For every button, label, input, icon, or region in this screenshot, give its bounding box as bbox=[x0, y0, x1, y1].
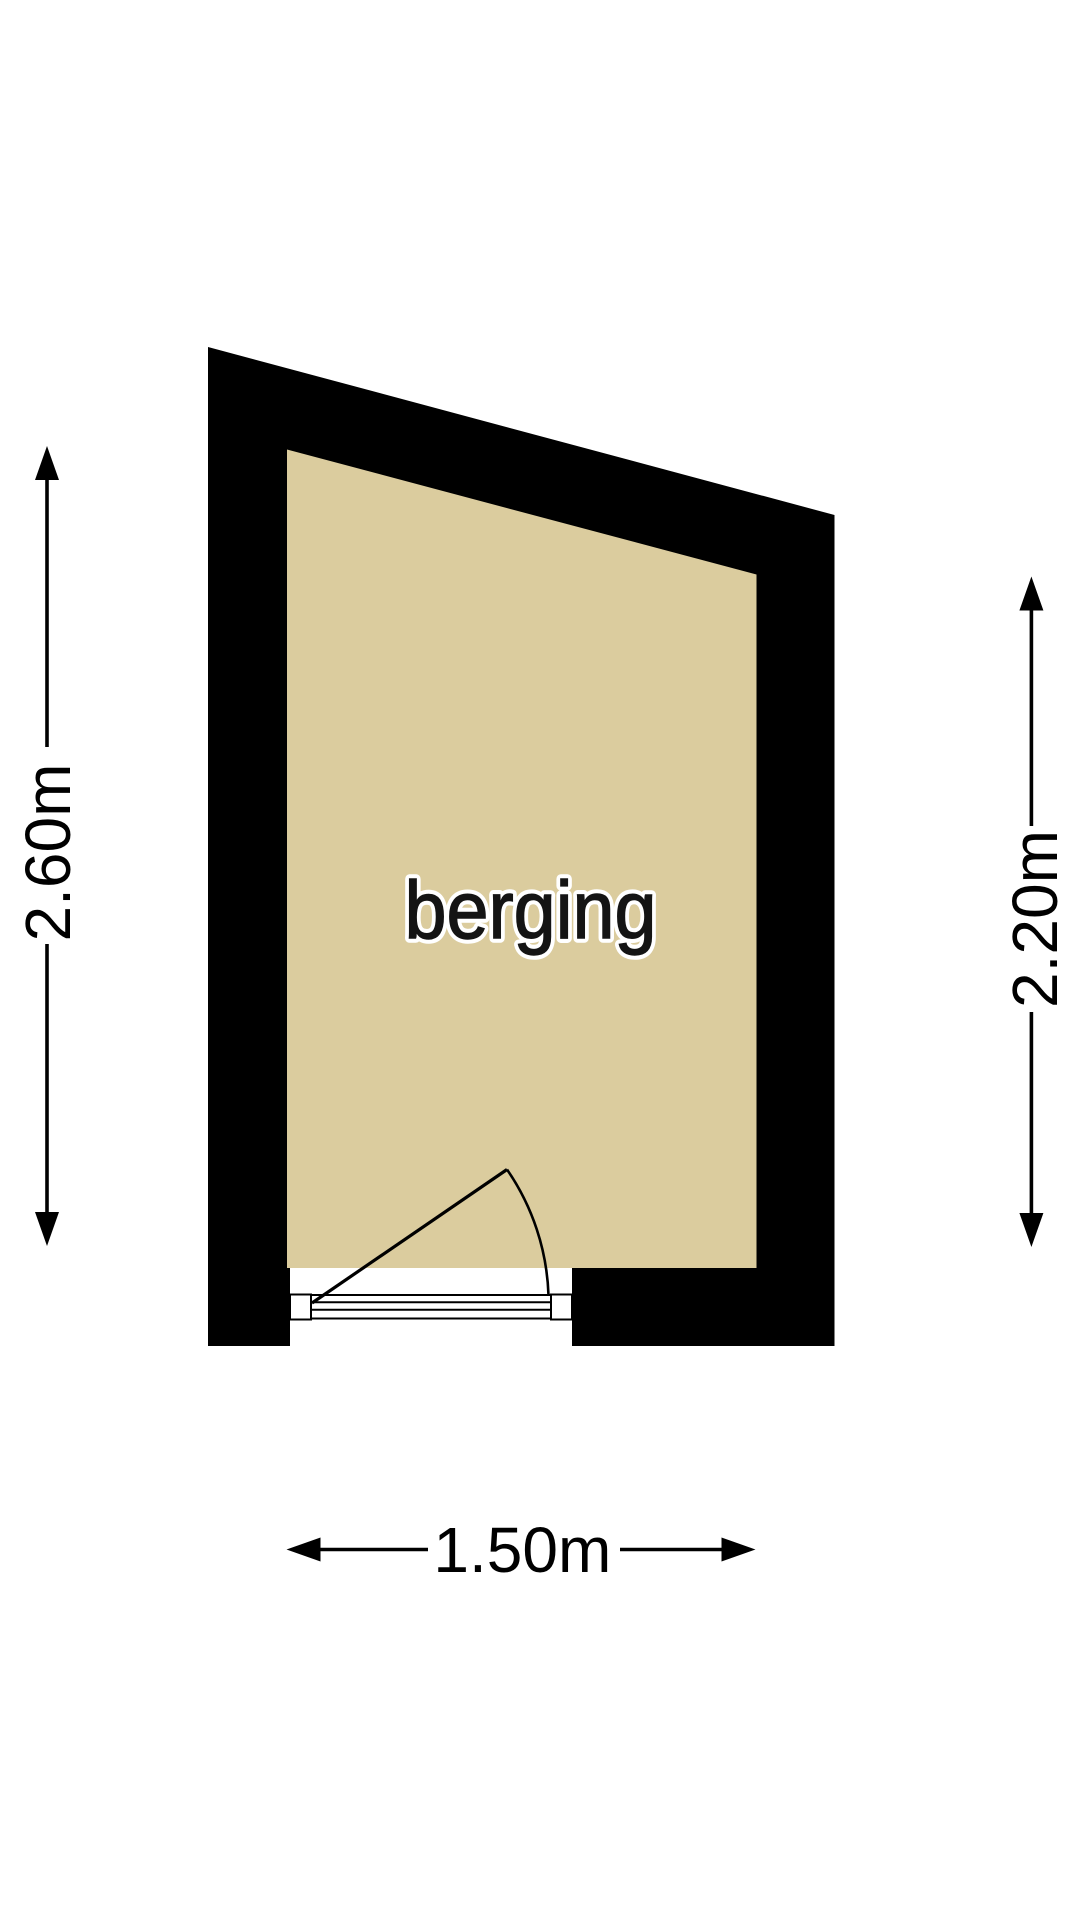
svg-text:berging: berging bbox=[405, 865, 657, 956]
svg-text:1.50m: 1.50m bbox=[433, 1514, 611, 1586]
svg-text:2.20m: 2.20m bbox=[999, 830, 1071, 1008]
svg-text:2.60m: 2.60m bbox=[12, 764, 84, 942]
